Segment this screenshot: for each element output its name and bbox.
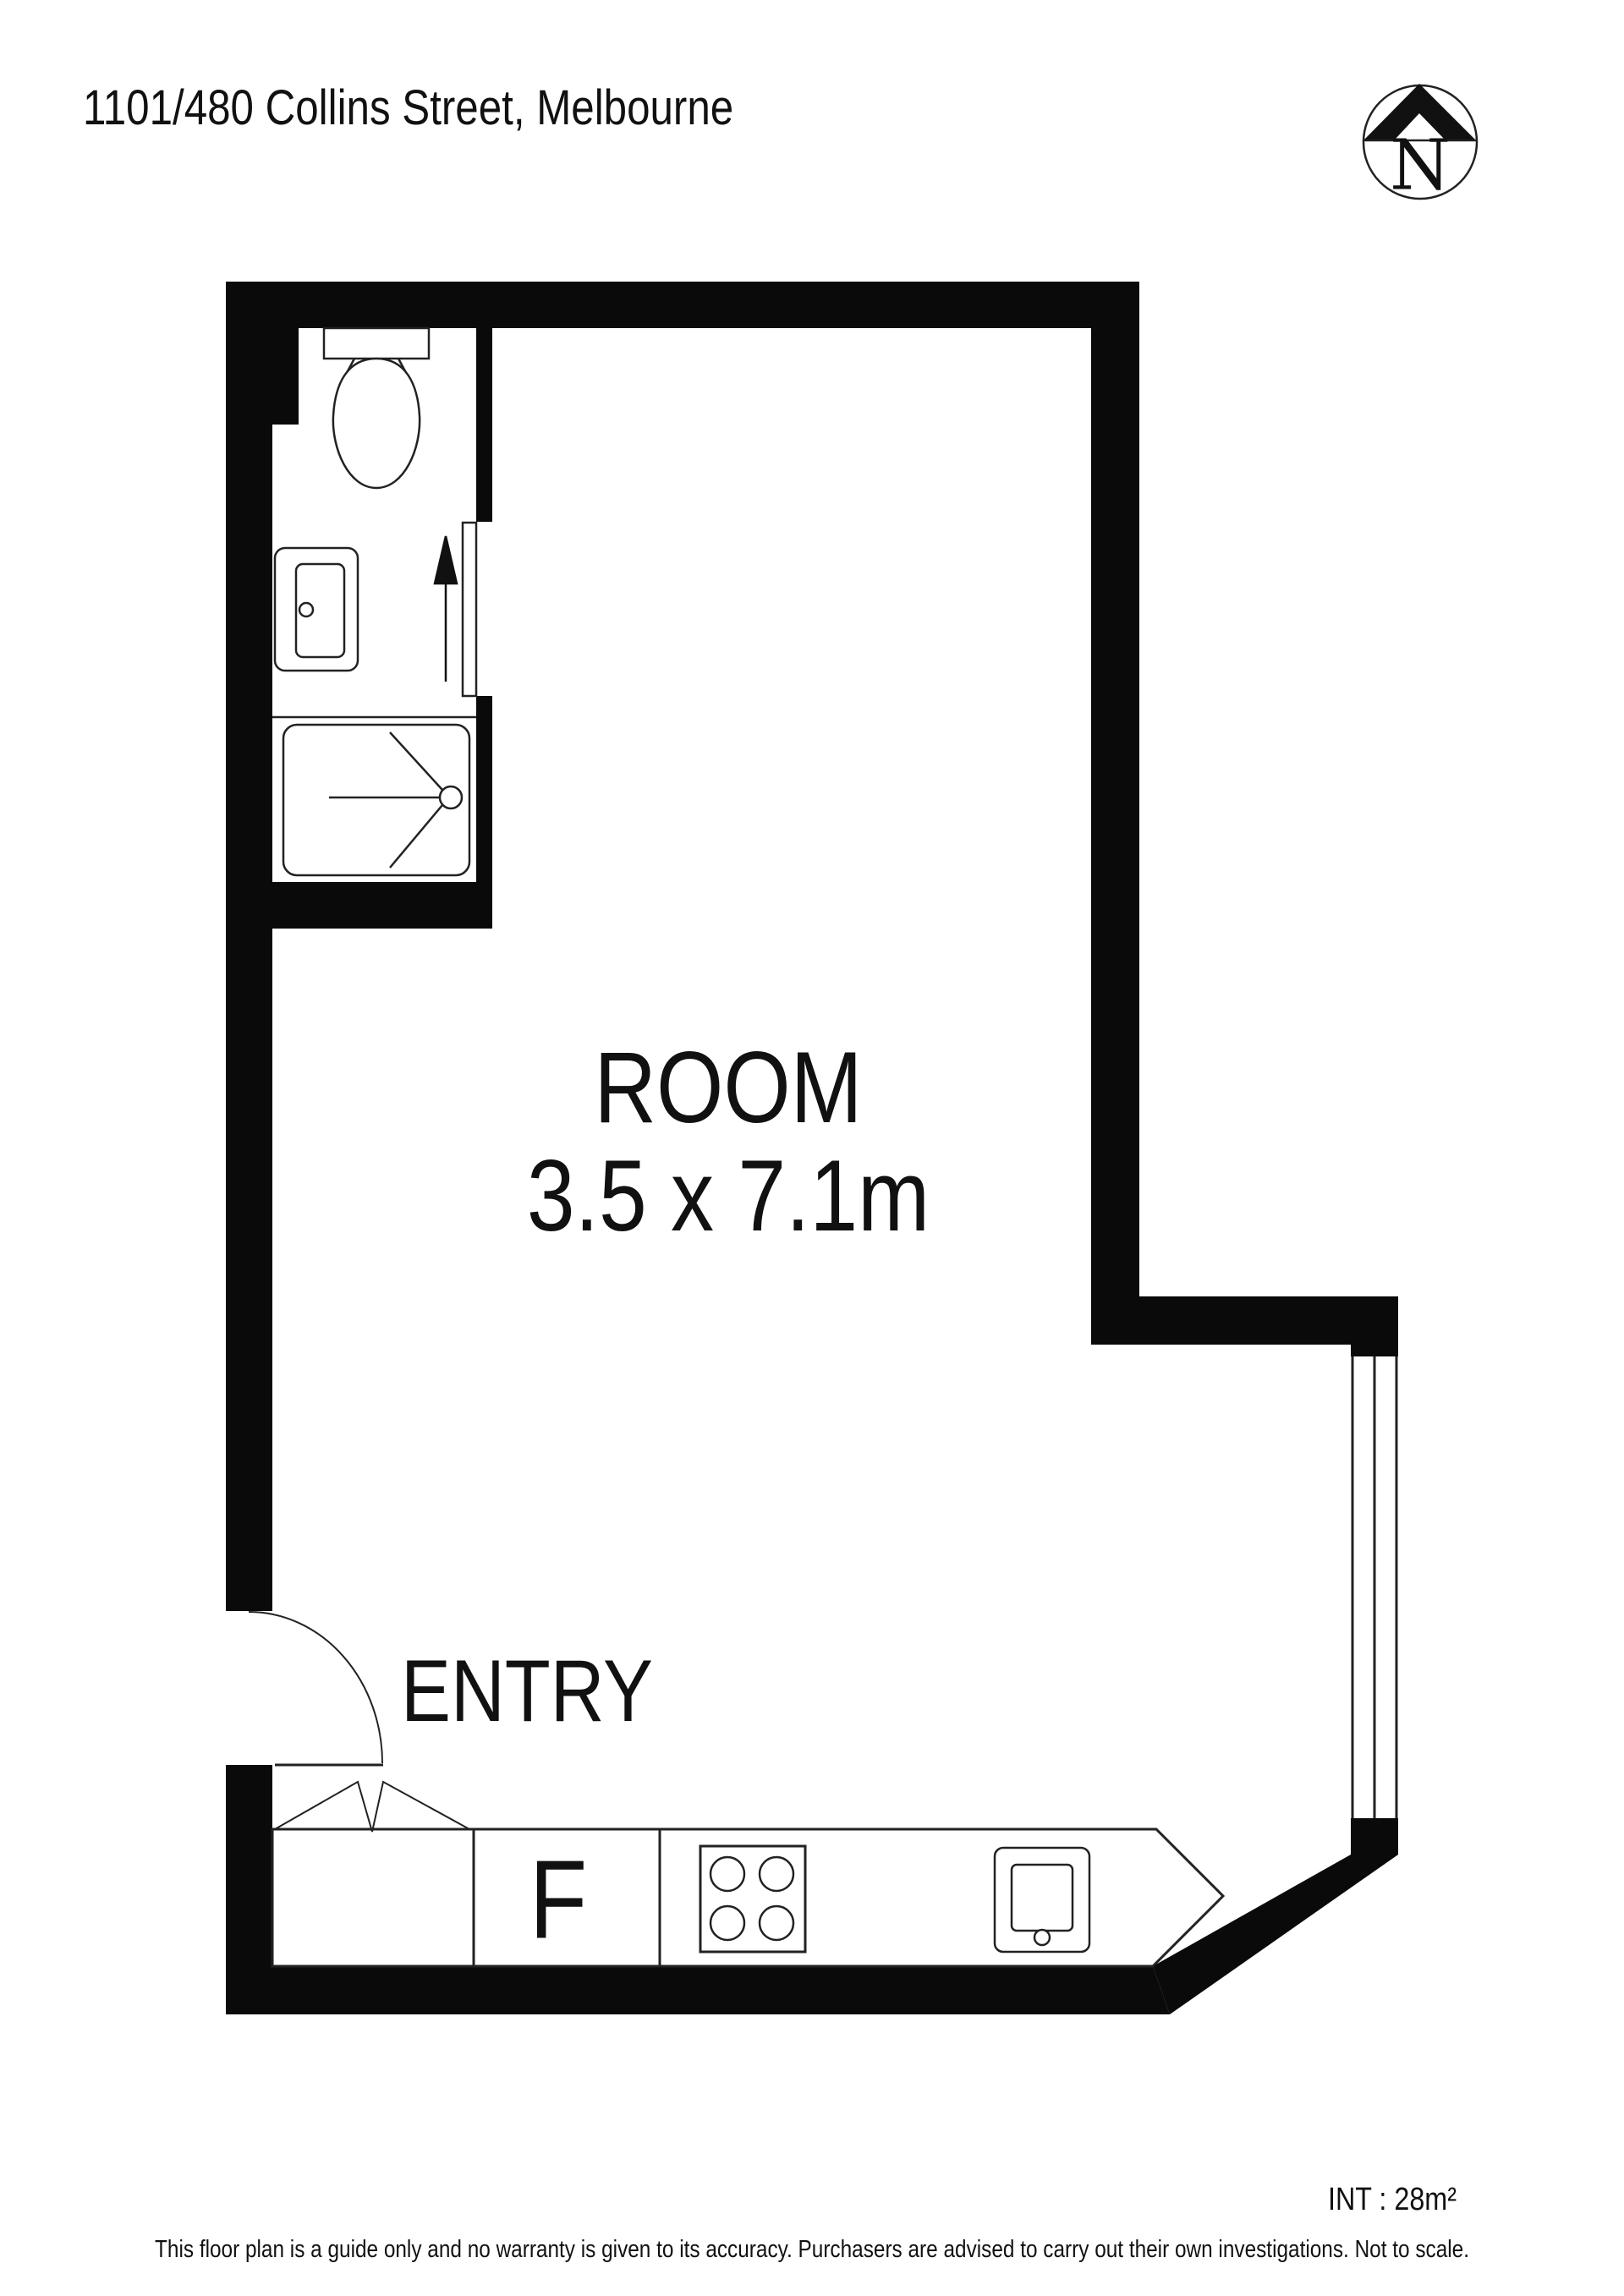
fridge-label: F <box>529 1836 588 1964</box>
vanity-sink-icon <box>275 548 358 671</box>
wall-left-pier <box>272 282 299 425</box>
wall-bathroom-stub-bottom <box>476 696 492 882</box>
room-label: ROOM 3.5 x 7.1m <box>527 1033 930 1250</box>
wall-right-upper <box>1091 282 1139 1345</box>
wall-left <box>226 282 272 1611</box>
window-icon <box>1352 1356 1396 1818</box>
wall-left-lower <box>226 1765 272 2014</box>
room-dimensions: 3.5 x 7.1m <box>527 1142 930 1250</box>
wall-bathroom-stub-top <box>476 328 492 522</box>
wall-window-stub-bottom <box>1351 1818 1398 1855</box>
disclaimer-text: This floor plan is a guide only and no w… <box>130 2236 1495 2264</box>
counter-zigzag-icon <box>275 1782 469 1832</box>
entry-door <box>249 1612 383 1765</box>
shower-icon <box>272 717 476 875</box>
internal-area-label: INT : 28m² <box>1328 2182 1457 2218</box>
entry-label: ENTRY <box>401 1647 653 1735</box>
wall-top <box>226 282 1139 328</box>
kitchen-sink-icon <box>995 1848 1089 1952</box>
wall-step <box>1091 1296 1398 1345</box>
door-direction-arrow-icon <box>435 536 457 682</box>
wall-bottom <box>226 1966 1170 2014</box>
wall-window-stub-top <box>1351 1345 1398 1356</box>
wall-bathroom-bottom <box>226 882 492 929</box>
room-name: ROOM <box>527 1033 930 1142</box>
cooktop-icon <box>700 1846 805 1952</box>
page-title: 1101/480 Collins Street, Melbourne <box>83 79 733 136</box>
sliding-door <box>463 523 476 696</box>
toilet-icon <box>324 328 429 488</box>
compass-n-label: N <box>1390 126 1451 206</box>
